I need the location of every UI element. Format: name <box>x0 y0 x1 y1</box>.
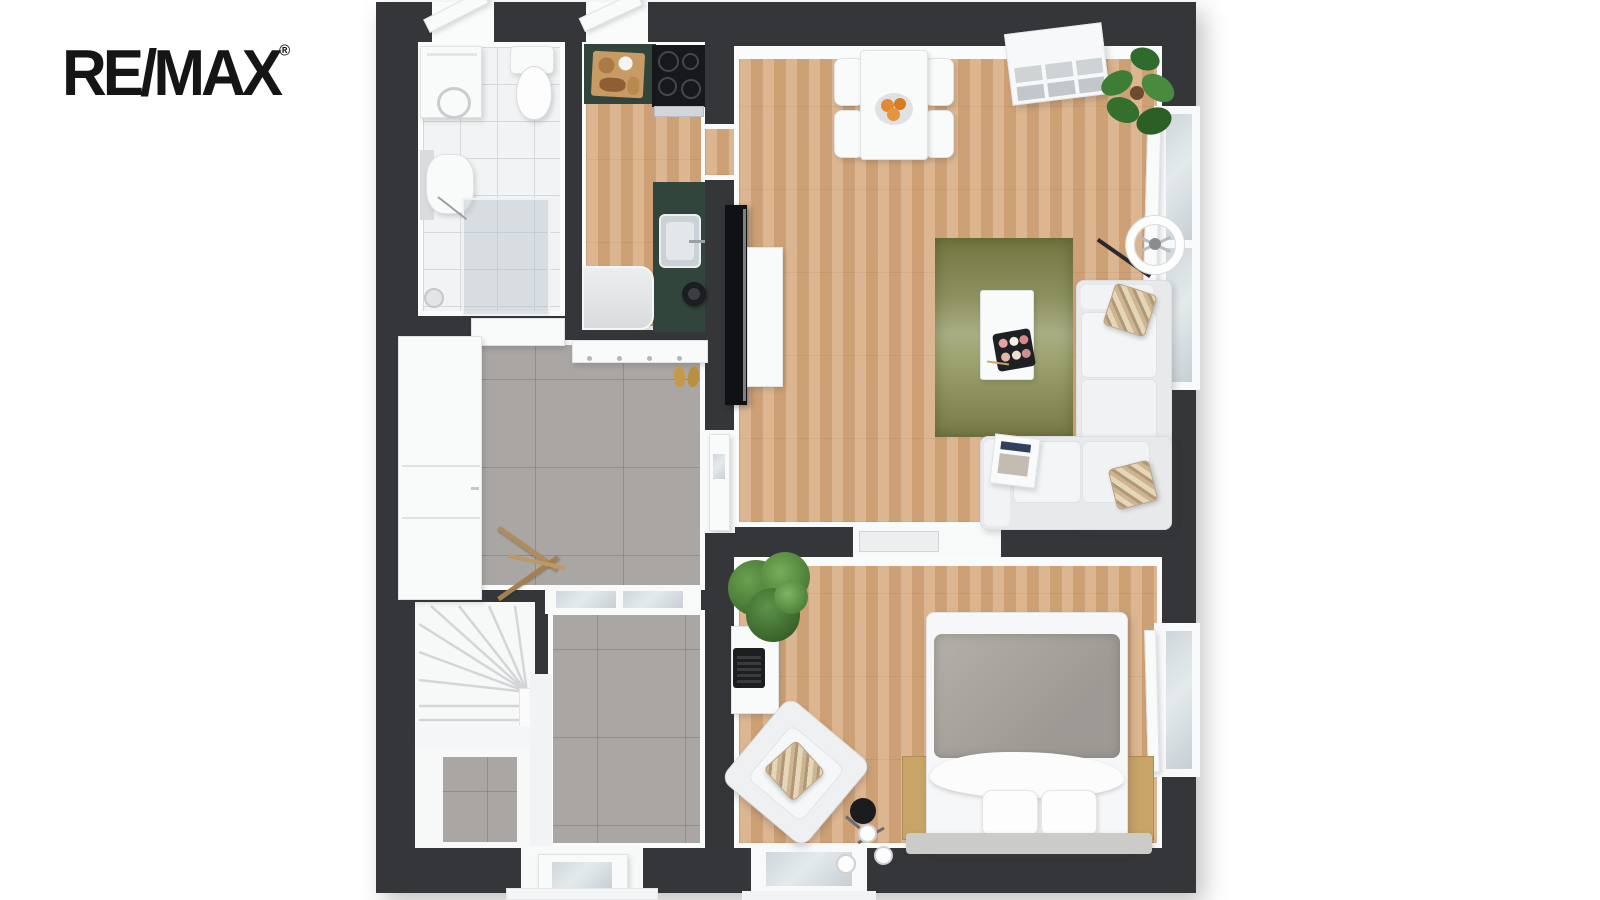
washer-controls <box>427 53 477 56</box>
faucet-icon <box>689 240 705 243</box>
monstera-plant <box>1096 46 1176 142</box>
baguette-icon <box>627 77 640 96</box>
window-glass-pane <box>1166 631 1192 769</box>
door-glass-pane <box>713 454 725 479</box>
washing-machine <box>420 46 482 118</box>
bed-bench <box>906 833 1152 854</box>
sushi-icon <box>1009 336 1019 346</box>
dining-chair <box>924 58 954 106</box>
sushi-icon <box>1021 348 1031 358</box>
fridge <box>582 266 654 330</box>
kitchen-sink <box>659 214 701 268</box>
magazine-photo <box>997 453 1029 477</box>
bedroom-window-sill <box>742 891 876 900</box>
typewriter-keys <box>737 653 761 683</box>
lamp-hub <box>1149 238 1161 250</box>
coat-rack <box>572 340 708 363</box>
door-glass-pane <box>552 862 612 889</box>
bathroom-door-leaf <box>471 318 565 346</box>
sushi-icon <box>998 338 1008 348</box>
registered-mark: ® <box>279 42 290 60</box>
wardrobe-handle <box>471 487 479 490</box>
shower-enclosure <box>462 198 550 316</box>
shelf-slot <box>1047 80 1076 97</box>
burner-icon <box>658 77 677 96</box>
stairs-room <box>415 602 535 728</box>
typewriter <box>733 648 765 688</box>
loaf-icon <box>599 77 626 92</box>
tv <box>725 205 747 405</box>
wardrobe-seam <box>402 465 480 467</box>
plate-icon <box>618 56 633 71</box>
hook-icon <box>647 356 652 361</box>
bulb-floor-lamp-base <box>850 798 876 824</box>
bulb-icon <box>874 846 893 865</box>
hook-icon <box>677 356 682 361</box>
living-door-leaf <box>709 434 730 531</box>
toilet-bowl <box>516 66 552 120</box>
shelf-slot <box>1014 65 1043 83</box>
dining-table <box>860 50 928 160</box>
partition-glass-pane <box>556 591 616 608</box>
kettle-lid <box>688 288 700 300</box>
leaf-icon <box>1133 103 1176 140</box>
tree-plant <box>722 550 822 650</box>
partition-glass-pane <box>623 591 683 608</box>
oven-rail <box>654 106 704 117</box>
room-entry <box>548 610 705 848</box>
tv-screen-edge <box>743 209 746 401</box>
bed-pillow <box>982 790 1038 837</box>
kitchen-entry-opening <box>705 124 734 180</box>
leaf-icon <box>1127 44 1163 75</box>
shelf-slot <box>1045 61 1074 79</box>
tree-foliage <box>774 580 808 614</box>
tv-board <box>747 247 783 387</box>
burner-icon <box>682 53 699 70</box>
winder-staircase <box>415 602 535 728</box>
entry-divider-wall <box>530 674 552 848</box>
entry-glass-partition <box>545 585 701 614</box>
kettle-icon <box>682 282 706 306</box>
ring-floor-lamp <box>1126 216 1184 274</box>
cutting-board <box>591 51 645 99</box>
bed-pillow <box>1041 790 1097 837</box>
sushi-icon <box>1011 350 1021 360</box>
orange-icon <box>887 108 900 121</box>
shelf-slot <box>1017 84 1046 101</box>
entry-door-sill <box>506 888 658 900</box>
sushi-icon <box>1019 334 1029 344</box>
sushi-tray <box>992 328 1036 372</box>
bedroom-sliding-door-panel <box>859 531 939 552</box>
hook-icon <box>587 356 592 361</box>
bedroom-window <box>1154 623 1200 777</box>
plant-pot <box>1130 86 1144 100</box>
hook-icon <box>617 356 622 361</box>
cooktop <box>652 45 705 107</box>
leaf-icon <box>1136 68 1179 108</box>
bulb-icon <box>836 854 856 874</box>
burner-icon <box>681 79 701 99</box>
bulb-icon <box>858 824 877 843</box>
shower-head-icon <box>424 288 444 308</box>
fruit-bowl <box>875 93 913 125</box>
magazine-cover <box>1000 441 1031 453</box>
washer-door-icon <box>437 87 471 119</box>
wardrobe <box>398 336 482 600</box>
closet-floor <box>443 757 517 842</box>
cube-shelf <box>1004 22 1110 105</box>
remax-logo: RE/MAX® <box>62 37 290 111</box>
burner-icon <box>658 51 679 72</box>
magazine <box>989 433 1041 488</box>
logo-text: RE/MAX <box>62 38 279 110</box>
page-canvas: RE/MAX® <box>0 0 1600 900</box>
duvet <box>934 634 1120 758</box>
bread-icon <box>598 57 615 74</box>
wardrobe-seam <box>402 517 480 519</box>
sushi-icon <box>1000 352 1010 362</box>
dining-chair <box>924 110 954 158</box>
